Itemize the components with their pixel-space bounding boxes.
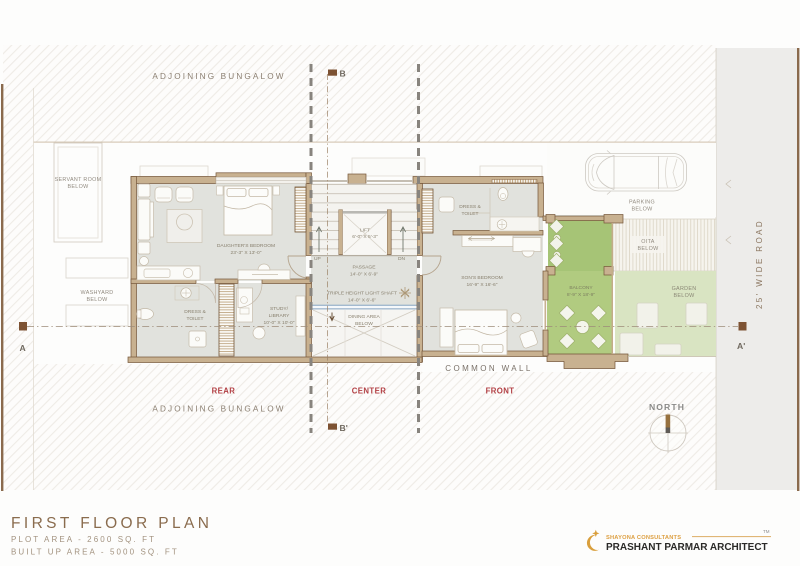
svg-text:DRESS &: DRESS & [184, 309, 206, 315]
svg-text:BELOW: BELOW [68, 184, 90, 190]
svg-text:PLOT AREA - 2600 SQ. FT: PLOT AREA - 2600 SQ. FT [11, 535, 156, 544]
svg-text:A: A [20, 343, 26, 353]
svg-text:PARKING: PARKING [629, 200, 655, 206]
svg-text:TRIPLE HEIGHT LIGHT SHAFT: TRIPLE HEIGHT LIGHT SHAFT [327, 291, 397, 297]
svg-text:CENTER: CENTER [352, 387, 386, 396]
svg-text:COMMON WALL: COMMON WALL [445, 364, 532, 373]
svg-text:6'-0" X 5'-3": 6'-0" X 5'-3" [352, 234, 378, 240]
svg-text:TOILET: TOILET [186, 316, 203, 322]
svg-text:BELOW: BELOW [638, 246, 660, 252]
svg-text:PASSAGE: PASSAGE [352, 265, 376, 271]
svg-text:WASHYARD: WASHYARD [81, 290, 114, 296]
svg-text:B': B' [340, 423, 348, 433]
svg-text:GARDEN: GARDEN [672, 286, 697, 292]
svg-text:16'-9" X 16'-6": 16'-9" X 16'-6" [467, 282, 498, 288]
svg-text:BALCONY: BALCONY [569, 285, 593, 291]
svg-text:DN: DN [398, 256, 406, 262]
svg-text:DRESS &: DRESS & [459, 204, 481, 210]
svg-text:SERVANT ROOM: SERVANT ROOM [55, 177, 102, 183]
svg-text:DAUGHTER'S BEDROOM: DAUGHTER'S BEDROOM [217, 243, 275, 249]
svg-text:FIRST FLOOR PLAN: FIRST FLOOR PLAN [11, 515, 212, 532]
svg-text:REAR: REAR [212, 387, 236, 396]
svg-text:NORTH: NORTH [649, 402, 685, 412]
svg-text:ADJOINING BUNGALOW: ADJOINING BUNGALOW [152, 72, 285, 81]
svg-text:23'-3" X 13'-0": 23'-3" X 13'-0" [231, 250, 262, 256]
svg-text:LIBRARY: LIBRARY [269, 313, 291, 319]
svg-text:TOILET: TOILET [461, 211, 478, 217]
svg-text:10'-0" X 10'-0": 10'-0" X 10'-0" [264, 320, 295, 326]
svg-text:A': A' [737, 341, 745, 351]
svg-text:LIFT: LIFT [360, 228, 370, 234]
svg-text:BELOW: BELOW [87, 297, 109, 303]
svg-text:PRASHANT PARMAR ARCHITECT: PRASHANT PARMAR ARCHITECT [606, 542, 768, 553]
svg-text:ADJOINING BUNGALOW: ADJOINING BUNGALOW [152, 405, 285, 414]
svg-text:BUILT UP AREA - 5000 SQ. FT: BUILT UP AREA - 5000 SQ. FT [11, 548, 179, 557]
svg-text:OITA: OITA [641, 239, 654, 245]
svg-text:14'-0" X 6'-6": 14'-0" X 6'-6" [348, 298, 376, 304]
svg-text:14'-0" X 6'-9": 14'-0" X 6'-9" [350, 272, 378, 278]
svg-text:SHAYONA CONSULTANTS: SHAYONA CONSULTANTS [606, 535, 681, 541]
svg-text:SON'S BEDROOM: SON'S BEDROOM [461, 275, 502, 281]
svg-text:8'-9" X 18'-9": 8'-9" X 18'-9" [567, 292, 595, 298]
svg-text:25' WIDE ROAD: 25' WIDE ROAD [755, 219, 764, 309]
svg-text:STUDY/: STUDY/ [270, 306, 289, 312]
svg-text:DINING AREA: DINING AREA [348, 314, 380, 320]
svg-text:FRONT: FRONT [486, 387, 515, 396]
svg-text:TM: TM [763, 529, 770, 534]
svg-text:B: B [340, 69, 346, 79]
svg-text:BELOW: BELOW [674, 293, 696, 299]
svg-text:UP: UP [314, 256, 321, 262]
svg-text:BELOW: BELOW [632, 207, 654, 213]
